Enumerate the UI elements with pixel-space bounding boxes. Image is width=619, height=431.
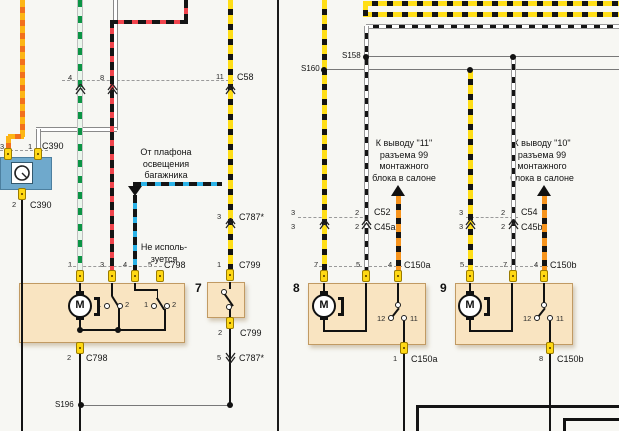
pin-number: 3	[217, 213, 221, 221]
connector-label-c787: C787*	[239, 353, 264, 363]
connector-label-c54: C54	[521, 207, 538, 217]
connector-pin	[394, 270, 402, 282]
pin-number: 2	[355, 223, 359, 231]
wire-white-drop	[36, 129, 41, 149]
wire-gray-black-9	[511, 57, 516, 271]
splice-dot-s158	[363, 54, 369, 60]
connector-pin	[466, 270, 474, 282]
pin-number: 5	[356, 261, 360, 269]
connector-pin	[108, 270, 116, 282]
note-trunk-lamp: От плафона освещения багажника	[112, 147, 220, 182]
connector-label-c150a: C150a	[411, 354, 438, 364]
note-to-pin11: К выводу "11" разъема 99 монтажного блок…	[364, 138, 444, 184]
splice-label-s158: S158	[342, 51, 361, 61]
pin-number: 5	[217, 354, 221, 362]
component-number-7: 7	[195, 281, 202, 295]
pin-number: 5	[148, 261, 152, 269]
wire-black-blue-run	[133, 182, 222, 186]
pin-number: 4	[388, 261, 392, 269]
connector-pin	[400, 342, 408, 354]
wire-black-ground	[79, 353, 82, 431]
contact-icon	[226, 304, 232, 310]
chevron-up-icon	[360, 219, 373, 230]
connector-label-c798: C798	[86, 353, 108, 363]
arrow-up-icon	[537, 185, 551, 196]
pin-number: 2	[355, 209, 359, 217]
pin-number: 2	[501, 223, 505, 231]
motor-magnet-bracket	[338, 297, 344, 316]
motor-lead	[365, 283, 367, 331]
connector-label-c45b: C45b	[521, 222, 543, 232]
contact-icon	[221, 289, 227, 295]
connector-pin	[226, 269, 234, 281]
connector-pin	[4, 148, 12, 160]
pin-number: 1	[68, 261, 72, 269]
switch-lead	[549, 321, 551, 343]
pin-number: 1	[393, 355, 397, 363]
contact-icon	[164, 303, 170, 309]
switch-lead	[397, 283, 399, 303]
connector-label-c52: C52	[374, 207, 391, 217]
chevron-up-icon	[74, 84, 87, 95]
contact-icon	[104, 303, 110, 309]
connector-pin	[18, 188, 26, 200]
wire-yellow-black-top2	[363, 12, 619, 17]
pin-number: 8	[539, 355, 543, 363]
pin-number: 4	[123, 261, 127, 269]
connector-pin	[320, 270, 328, 282]
contact-icon	[151, 303, 157, 309]
motor-lead	[323, 330, 367, 332]
pin-number: 2	[501, 209, 505, 217]
junction-dot	[227, 402, 233, 408]
connector-pin	[509, 270, 517, 282]
connector-pin	[156, 270, 164, 282]
connector-label-c58: C58	[237, 72, 254, 82]
arrow-down-icon	[128, 186, 142, 196]
junction-dot	[115, 327, 121, 333]
connector-label-c799: C799	[239, 260, 261, 270]
wire-black-red-run	[110, 20, 188, 24]
wire-orange	[20, 0, 25, 137]
contact-icon	[117, 303, 123, 309]
pump-icon	[13, 164, 31, 182]
motor-icon: M	[458, 294, 482, 318]
pin-number: 4	[534, 261, 538, 269]
connector-pin	[540, 270, 548, 282]
splice-dot-s196	[78, 402, 84, 408]
contact-icon	[547, 315, 553, 321]
arrow-up-icon	[391, 185, 405, 196]
contact-icon	[534, 315, 540, 321]
switch-lead	[134, 289, 158, 291]
switch-lead	[403, 321, 405, 343]
connector-pin	[546, 342, 554, 354]
contact-icon	[541, 302, 547, 308]
connector-line-c150a	[314, 266, 402, 267]
connector-pin	[34, 148, 42, 160]
splice-line-s158	[366, 56, 619, 57]
pin-number: 5	[460, 261, 464, 269]
motor-magnet-bracket	[484, 297, 490, 316]
component-number-8: 8	[293, 281, 300, 295]
connector-label-c45a: C45a	[374, 222, 396, 232]
chevron-up-icon	[318, 219, 331, 230]
component-box-6	[19, 283, 185, 343]
connector-line-c150b	[460, 266, 548, 267]
switch-lead	[111, 283, 113, 296]
junction-dot	[77, 327, 83, 333]
pin-number: 2	[12, 201, 16, 209]
connector-pin	[131, 270, 139, 282]
chevron-up-icon	[106, 84, 119, 95]
contact-icon	[388, 315, 394, 321]
contact-icon	[395, 302, 401, 308]
splice-label-s160: S160	[301, 64, 320, 74]
wire-orange-black-8	[396, 196, 401, 271]
component-box-7	[207, 282, 245, 318]
splice-line-s196	[81, 405, 231, 406]
pin-number: 3	[100, 261, 104, 269]
connector-label-c390: C390	[30, 200, 52, 210]
switch-lead	[229, 282, 231, 289]
pin-number: 3	[459, 223, 463, 231]
connector-label-c787: C787*	[239, 212, 264, 222]
connector-line-c52	[298, 217, 368, 218]
switch-lead	[543, 283, 545, 303]
wire-yellow-black-8	[322, 0, 327, 271]
splice-dot-s160	[321, 67, 327, 73]
component-box-partial	[563, 418, 619, 431]
component-number-9: 9	[440, 281, 447, 295]
wire-yellow-black-9	[468, 70, 473, 271]
pin-number: 3	[459, 209, 463, 217]
wire-gray-black-8	[364, 26, 369, 271]
connector-label-c150a: C150a	[404, 260, 431, 270]
contact-number: 2	[125, 301, 129, 309]
wire-black	[549, 353, 552, 431]
wire-black	[403, 353, 406, 431]
chevron-up-icon	[507, 219, 520, 230]
motor-lead	[469, 330, 513, 332]
pin-number: 3	[291, 209, 295, 217]
wire-green-dashed	[77, 0, 83, 271]
wire-yellow-black-left	[228, 0, 233, 271]
chevron-down-icon	[224, 352, 237, 363]
pin-number: 7	[503, 261, 507, 269]
pin-number: 2	[218, 329, 222, 337]
contact-icon	[401, 315, 407, 321]
wire-black-blue	[133, 195, 137, 271]
wire-black-ground	[21, 199, 24, 431]
motor-icon: M	[68, 294, 92, 318]
connector-label-c150b: C150b	[550, 260, 577, 270]
wire-black	[229, 328, 232, 406]
connector-pin	[76, 342, 84, 354]
connector-label-c798: C798	[164, 260, 186, 270]
pin-number: 7	[314, 261, 318, 269]
connector-pin	[362, 270, 370, 282]
junction-dot	[467, 67, 473, 73]
connector-label-c799: C799	[240, 328, 262, 338]
wire-orange-black-9	[542, 196, 547, 271]
wire-black-bottom-drop	[416, 405, 419, 431]
motor-lead	[511, 283, 513, 331]
connector-pin	[226, 317, 234, 329]
wire-black-bottom-run	[416, 405, 619, 408]
pin-number: 3	[291, 223, 295, 231]
motor-icon: M	[312, 294, 336, 318]
chevron-up-icon	[464, 219, 477, 230]
section-divider	[277, 0, 279, 431]
contact-number: 11	[556, 315, 564, 323]
contact-number: 12	[523, 315, 531, 323]
connector-line-c58	[62, 80, 234, 81]
pin-number: 1	[217, 261, 221, 269]
internal-bus	[79, 329, 166, 331]
switch-lead	[164, 309, 166, 330]
splice-label-s196: S196	[55, 400, 74, 410]
wire-black-red	[110, 20, 114, 271]
wiring-diagram: 4 8 11 C58 3 C787* 3 1 C390 2 C390 От пл…	[0, 0, 619, 431]
contact-number: 12	[377, 315, 385, 323]
connector-pin	[76, 270, 84, 282]
wire-yellow-black-hairpin	[363, 1, 368, 17]
junction-dot	[510, 54, 516, 60]
contact-number: 11	[410, 315, 418, 323]
chevron-up-icon	[224, 218, 237, 229]
wire-yellow-black-top1	[363, 1, 619, 6]
motor-magnet-bracket	[94, 297, 100, 316]
chevron-up-icon	[224, 84, 237, 95]
contact-number: 2	[172, 301, 176, 309]
wire-gray-black-top	[366, 24, 619, 29]
connector-label-c150b: C150b	[557, 354, 584, 364]
contact-number: 1	[144, 301, 148, 309]
pin-number: 2	[67, 354, 71, 362]
